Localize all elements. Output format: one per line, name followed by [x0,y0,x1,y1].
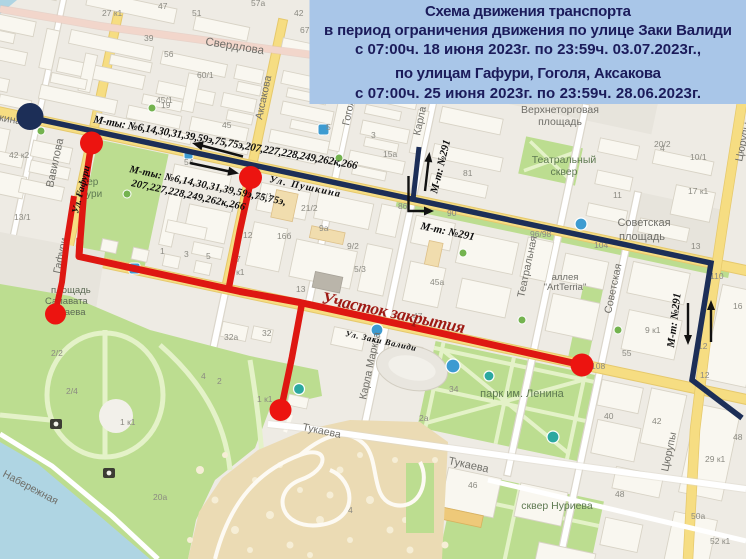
svg-text:60/1: 60/1 [197,70,214,80]
svg-text:51: 51 [192,8,202,18]
svg-text:67: 67 [300,25,310,35]
svg-text:55: 55 [622,348,632,358]
svg-text:20а: 20а [153,492,167,502]
svg-text:9/2: 9/2 [347,241,359,251]
svg-text:32: 32 [262,328,272,338]
svg-text:15а: 15а [383,149,397,159]
svg-text:4: 4 [348,505,353,515]
svg-text:45а: 45а [430,277,444,287]
svg-text:5: 5 [206,251,211,261]
svg-text:1: 1 [160,246,165,256]
svg-text:16б: 16б [277,231,291,241]
svg-text:39: 39 [144,33,154,43]
svg-text:17 к1: 17 к1 [688,186,709,196]
svg-text:1 к1: 1 к1 [120,417,136,427]
svg-text:52 к1: 52 к1 [710,536,731,546]
svg-text:42: 42 [294,8,304,18]
svg-text:парк им. Ленина: парк им. Ленина [480,388,565,400]
svg-text:2/2: 2/2 [51,348,63,358]
svg-text:2: 2 [217,376,222,386]
svg-text:48: 48 [615,489,625,499]
svg-text:32а: 32а [224,332,238,342]
svg-text:площадь: площадь [619,231,665,243]
svg-text:с 07:00ч. 18 июня 2023г. по 23: с 07:00ч. 18 июня 2023г. по 23:59ч. 03.0… [355,41,701,58]
svg-text:в период ограничения движения: в период ограничения движения по улице З… [324,22,732,39]
svg-text:86: 86 [398,201,408,211]
svg-text:по улицам Гафури, Гоголя, Акса: по улицам Гафури, Гоголя, Аксакова [395,65,662,82]
svg-text:5/3: 5/3 [354,264,366,274]
svg-text:16: 16 [733,301,743,311]
svg-text:4: 4 [201,371,206,381]
svg-text:10/1: 10/1 [690,152,707,162]
svg-text:12: 12 [243,230,253,240]
svg-text:Театральный: Театральный [532,154,597,166]
svg-text:34: 34 [449,384,459,394]
svg-text:47: 47 [158,1,168,11]
svg-text:81: 81 [463,168,473,178]
svg-text:4: 4 [660,143,665,153]
svg-text:12: 12 [700,370,710,380]
svg-text:19: 19 [161,100,171,110]
svg-text:42 к2: 42 к2 [9,150,30,160]
svg-text:11: 11 [613,190,622,200]
svg-text:с 07:00ч. 25 июня 2023г. по 23: с 07:00ч. 25 июня 2023г. по 23:59ч. 28.0… [355,85,701,102]
svg-text:45: 45 [222,120,232,130]
svg-text:27 к1: 27 к1 [102,8,123,18]
svg-text:Верхнеторговая: Верхнеторговая [521,104,599,116]
svg-text:48: 48 [733,432,743,442]
svg-text:сквер Нуриева: сквер Нуриева [521,500,593,512]
svg-text:46: 46 [468,480,478,490]
svg-text:5: 5 [326,122,331,132]
svg-text:50а: 50а [691,511,705,521]
svg-text:3: 3 [184,249,189,259]
svg-text:2а: 2а [419,413,429,423]
svg-text:Схема движения транспорта: Схема движения транспорта [425,3,632,20]
svg-text:9 к1: 9 к1 [645,325,661,335]
svg-text:сквер: сквер [551,166,578,178]
svg-text:21/2: 21/2 [301,203,318,213]
svg-text:"ArtTerria": "ArtTerria" [544,282,587,293]
svg-text:2/4: 2/4 [66,386,78,396]
svg-text:29 к1: 29 к1 [705,454,726,464]
svg-text:42: 42 [652,416,662,426]
svg-text:57а: 57а [251,0,265,8]
svg-text:3: 3 [371,130,376,140]
svg-text:13: 13 [691,241,701,251]
svg-text:54: 54 [184,157,194,167]
svg-text:56: 56 [164,49,174,59]
svg-text:40: 40 [604,411,614,421]
svg-text:13/1: 13/1 [14,212,31,222]
svg-text:Советская: Советская [617,217,670,229]
svg-text:1 к1: 1 к1 [257,394,273,404]
svg-text:площадь: площадь [538,116,582,128]
svg-text:9а: 9а [319,223,329,233]
svg-text:13: 13 [296,284,306,294]
